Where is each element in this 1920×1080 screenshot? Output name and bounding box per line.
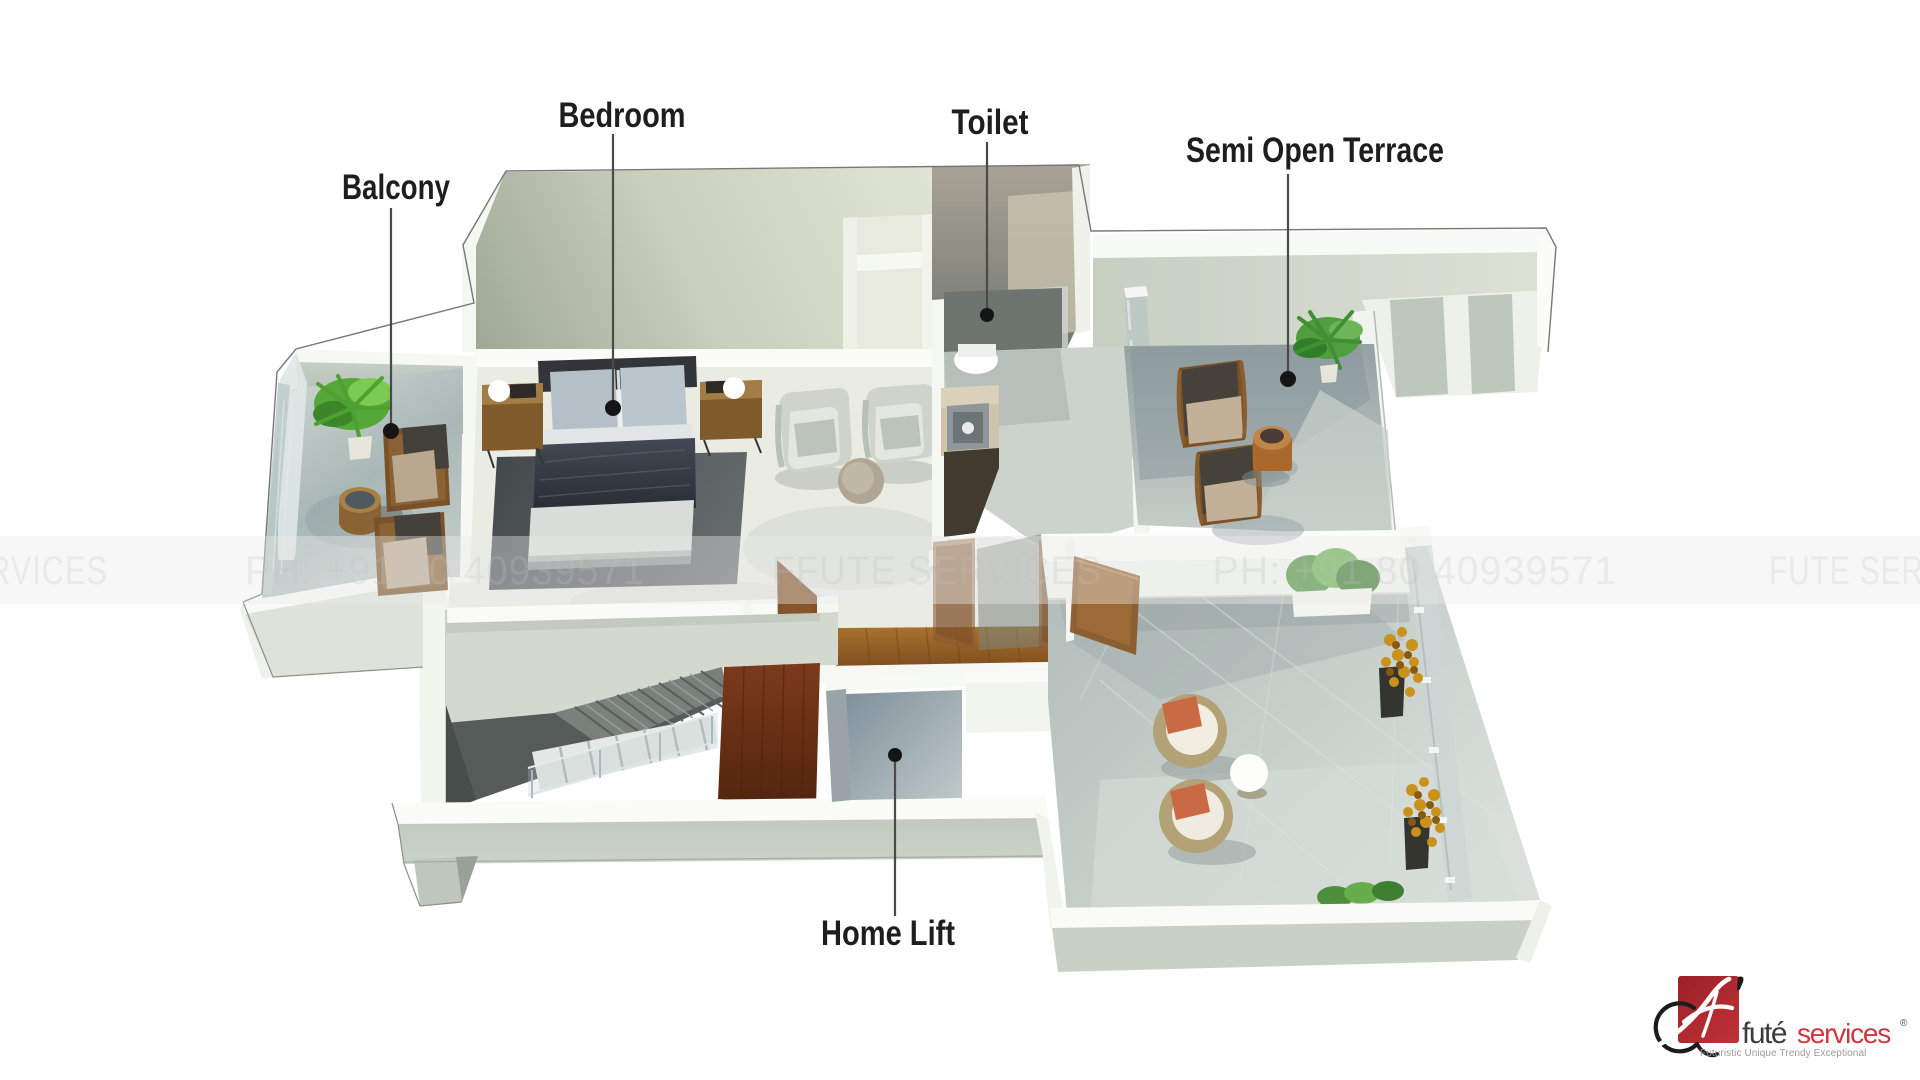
svg-text:services: services xyxy=(1797,1018,1890,1049)
svg-text:futé: futé xyxy=(1742,1017,1787,1050)
svg-text:Bedroom: Bedroom xyxy=(559,96,686,135)
svg-text:Balcony: Balcony xyxy=(342,168,450,207)
svg-text:Semi Open Terrace: Semi Open Terrace xyxy=(1186,131,1444,170)
svg-text:Toilet: Toilet xyxy=(952,103,1029,142)
svg-text:FUTE SER: FUTE SER xyxy=(1769,549,1920,593)
svg-text:FFUTE SERVICES: FFUTE SERVICES xyxy=(772,549,1102,593)
svg-text:®: ® xyxy=(1900,1018,1908,1029)
svg-text:Home Lift: Home Lift xyxy=(821,914,955,953)
svg-text:PH: +91 80 40939571: PH: +91 80 40939571 xyxy=(245,549,645,593)
svg-text:Futuristic Unique Trendy Excep: Futuristic Unique Trendy Exceptional xyxy=(1700,1048,1866,1059)
svg-text:PH: +91 80 40939571: PH: +91 80 40939571 xyxy=(1213,549,1618,593)
svg-text:RVICES: RVICES xyxy=(0,549,108,593)
